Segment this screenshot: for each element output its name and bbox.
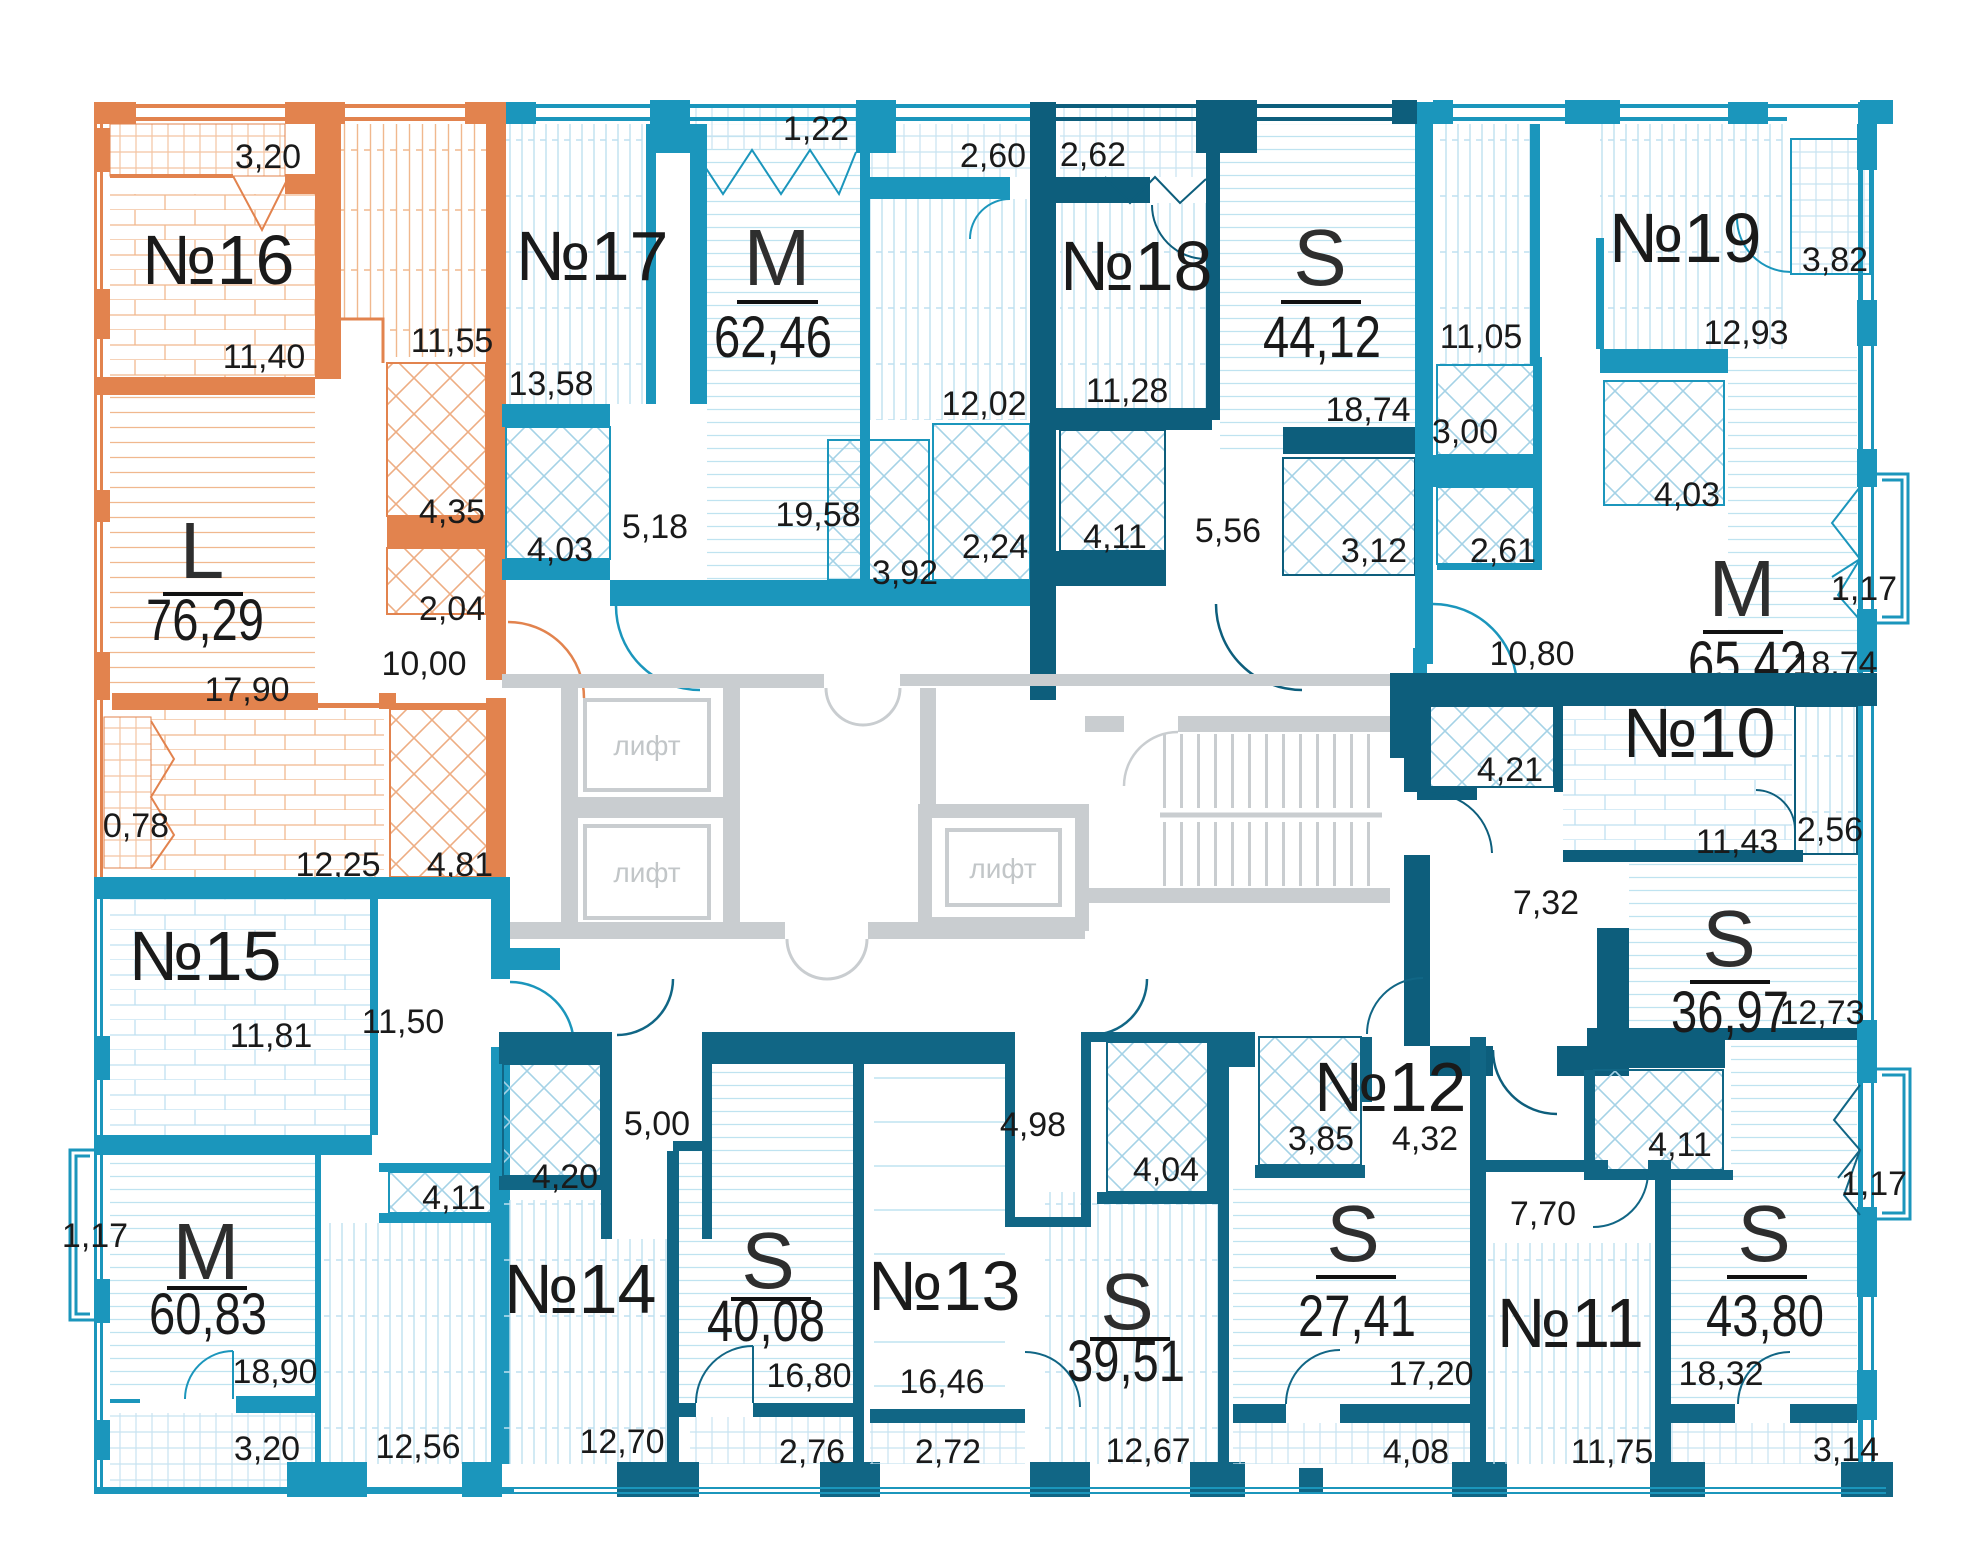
svg-text:44,12: 44,12	[1263, 305, 1381, 370]
svg-text:2,04: 2,04	[419, 590, 485, 628]
svg-text:60,83: 60,83	[149, 1282, 267, 1347]
svg-text:3,85: 3,85	[1288, 1120, 1354, 1158]
svg-text:12,56: 12,56	[375, 1428, 460, 1466]
svg-text:18,32: 18,32	[1678, 1355, 1763, 1393]
svg-text:3,20: 3,20	[235, 138, 301, 176]
svg-text:1,17: 1,17	[1831, 570, 1897, 608]
svg-text:13,58: 13,58	[508, 365, 593, 403]
svg-text:16,46: 16,46	[899, 1363, 984, 1401]
svg-text:2,72: 2,72	[915, 1433, 981, 1471]
svg-text:M: M	[1709, 544, 1776, 633]
svg-text:№18: №18	[1060, 227, 1213, 305]
svg-text:№12: №12	[1314, 1048, 1467, 1126]
svg-text:11,81: 11,81	[230, 1017, 313, 1055]
svg-text:1,17: 1,17	[1841, 1165, 1907, 1203]
svg-text:5,56: 5,56	[1195, 512, 1261, 550]
svg-text:2,76: 2,76	[779, 1433, 845, 1471]
svg-text:лифт: лифт	[613, 730, 680, 761]
svg-text:11,05: 11,05	[1440, 318, 1523, 356]
svg-text:12,73: 12,73	[1779, 994, 1864, 1032]
svg-text:№15: №15	[129, 917, 282, 995]
svg-text:№14: №14	[504, 1250, 657, 1328]
svg-text:2,24: 2,24	[962, 528, 1028, 566]
svg-text:4,98: 4,98	[1000, 1106, 1066, 1144]
svg-text:S: S	[1293, 213, 1346, 302]
svg-text:4,11: 4,11	[1083, 518, 1147, 556]
svg-text:4,03: 4,03	[527, 531, 593, 569]
svg-text:12,70: 12,70	[579, 1423, 664, 1461]
svg-text:11,40: 11,40	[223, 338, 306, 376]
svg-text:11,28: 11,28	[1086, 372, 1169, 410]
svg-text:16,80: 16,80	[766, 1357, 851, 1395]
svg-text:76,29: 76,29	[146, 588, 264, 653]
svg-text:3,82: 3,82	[1802, 241, 1868, 279]
svg-text:12,02: 12,02	[941, 385, 1026, 423]
svg-text:2,56: 2,56	[1797, 811, 1863, 849]
svg-text:3,20: 3,20	[234, 1430, 300, 1468]
svg-text:11,75: 11,75	[1571, 1433, 1654, 1471]
svg-text:лифт: лифт	[969, 853, 1036, 884]
svg-text:0,78: 0,78	[103, 807, 169, 845]
svg-text:L: L	[180, 506, 225, 595]
svg-text:S: S	[1702, 894, 1755, 983]
svg-text:7,32: 7,32	[1513, 884, 1579, 922]
svg-text:39,51: 39,51	[1067, 1329, 1185, 1394]
svg-text:18,74: 18,74	[1325, 391, 1410, 429]
svg-text:4,21: 4,21	[1477, 751, 1543, 789]
svg-text:36,97: 36,97	[1671, 980, 1789, 1045]
svg-text:№10: №10	[1623, 694, 1776, 772]
svg-text:12,67: 12,67	[1105, 1432, 1190, 1470]
svg-text:10,00: 10,00	[381, 645, 466, 683]
svg-text:№11: №11	[1496, 1284, 1644, 1362]
svg-text:17,20: 17,20	[1388, 1355, 1473, 1393]
svg-text:27,41: 27,41	[1298, 1284, 1416, 1349]
svg-text:18,90: 18,90	[232, 1353, 317, 1391]
svg-text:4,11: 4,11	[1648, 1126, 1712, 1164]
svg-text:2,62: 2,62	[1060, 136, 1126, 174]
svg-text:4,11: 4,11	[422, 1179, 486, 1217]
svg-text:5,00: 5,00	[624, 1105, 690, 1143]
svg-text:лифт: лифт	[613, 857, 680, 888]
svg-text:4,08: 4,08	[1383, 1433, 1449, 1471]
svg-text:4,03: 4,03	[1654, 476, 1720, 514]
svg-text:11,43: 11,43	[1696, 823, 1779, 861]
svg-text:43,80: 43,80	[1706, 1284, 1824, 1349]
svg-text:5,18: 5,18	[622, 508, 688, 546]
svg-text:10,80: 10,80	[1489, 635, 1574, 673]
svg-text:62,46: 62,46	[714, 305, 832, 370]
svg-text:№13: №13	[868, 1247, 1021, 1325]
svg-text:12,93: 12,93	[1703, 314, 1788, 352]
svg-text:M: M	[744, 213, 811, 302]
svg-text:17,90: 17,90	[204, 671, 289, 709]
svg-text:№16: №16	[142, 221, 295, 299]
svg-text:1,17: 1,17	[62, 1217, 128, 1255]
svg-text:4,35: 4,35	[419, 493, 485, 531]
svg-text:3,12: 3,12	[1341, 532, 1407, 570]
svg-text:S: S	[1737, 1189, 1790, 1278]
svg-text:4,20: 4,20	[532, 1158, 598, 1196]
svg-text:11,55: 11,55	[411, 322, 494, 360]
svg-text:11,50: 11,50	[362, 1003, 445, 1041]
svg-text:7,70: 7,70	[1510, 1195, 1576, 1233]
svg-text:1,22: 1,22	[783, 110, 849, 148]
svg-text:3,92: 3,92	[872, 554, 938, 592]
svg-text:19,58: 19,58	[775, 496, 860, 534]
svg-text:№17: №17	[516, 217, 669, 295]
svg-text:2,61: 2,61	[1470, 532, 1536, 570]
svg-text:2,60: 2,60	[960, 137, 1026, 175]
svg-text:4,32: 4,32	[1392, 1120, 1458, 1158]
svg-text:№19: №19	[1609, 199, 1762, 277]
svg-text:3,00: 3,00	[1432, 413, 1498, 451]
svg-text:4,04: 4,04	[1133, 1151, 1199, 1189]
svg-text:S: S	[1326, 1189, 1379, 1278]
svg-text:3,14: 3,14	[1813, 1431, 1879, 1469]
svg-text:40,08: 40,08	[707, 1289, 825, 1354]
